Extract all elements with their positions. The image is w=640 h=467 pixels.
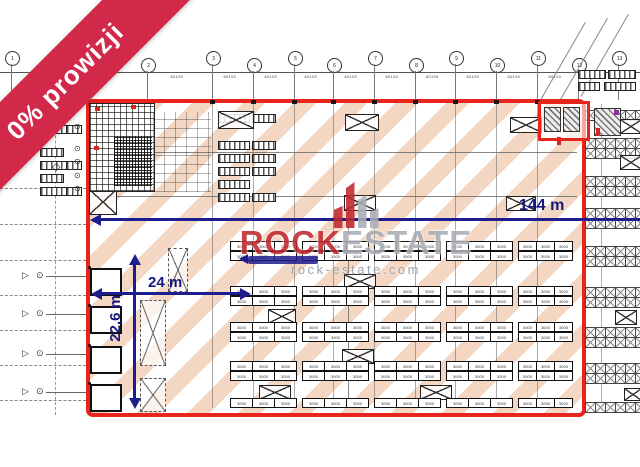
vertical-rack	[140, 300, 166, 366]
rack-band: 300030003000	[374, 296, 440, 306]
dimension-bar	[252, 193, 276, 202]
rack-cell: 3000	[396, 398, 419, 408]
crossed-box	[344, 195, 376, 211]
rack-cell: 3000	[490, 286, 513, 296]
rack-band: 300030003000	[446, 251, 512, 261]
rack-cell: 3000	[518, 241, 537, 251]
rack-cell: 3000	[252, 361, 275, 371]
grid-bubble: 5	[288, 51, 303, 66]
dimension-bar	[252, 141, 276, 150]
rack-cell: 3000	[490, 361, 513, 371]
rack-cell: 3000	[536, 332, 555, 342]
dimension-bar	[252, 167, 276, 176]
column-marker	[494, 100, 499, 104]
dimension-bar	[218, 180, 250, 189]
rack-cell: 3000	[374, 332, 397, 342]
crossed-box	[89, 189, 117, 215]
rack-band: 300030003000	[302, 398, 368, 408]
dimension-label-22-6m: 22,6 m	[107, 295, 124, 342]
grid-bubble: 9	[449, 51, 464, 66]
dock-hinge-icon	[88, 344, 91, 347]
rack-band: 300030003000	[302, 332, 368, 342]
arrowhead-left-icon	[239, 254, 248, 264]
dock-hinge-icon	[88, 382, 91, 385]
rack-cell: 3000	[536, 286, 555, 296]
rack-cell: 3000	[396, 371, 419, 381]
rack-cell: 3000	[536, 398, 555, 408]
rack-band: 300030003000	[374, 332, 440, 342]
crossed-box	[218, 111, 254, 129]
dimension-bar	[252, 154, 276, 163]
rack-cell: 3000	[274, 361, 297, 371]
rack-cell: 3000	[396, 286, 419, 296]
grid-stem	[147, 71, 148, 100]
dock-circle-icon: ⊙	[36, 270, 44, 281]
technical-room-outline	[538, 101, 590, 141]
dimension-bar	[252, 114, 276, 123]
rack-cell: 3000	[324, 371, 347, 381]
bay-dimension-text: 60100	[305, 74, 318, 79]
rack-band: 300030003000	[518, 251, 572, 261]
rack-cell: 3000	[446, 296, 469, 306]
rack-band: 300030003000	[518, 296, 572, 306]
dimension-bar	[578, 70, 606, 79]
dimension-bar	[248, 256, 318, 264]
rack-cell: 3000	[554, 371, 573, 381]
rack-cell: 3000	[518, 361, 537, 371]
dock-leader-line	[46, 314, 86, 315]
rack-band: 300030003000	[302, 241, 368, 251]
rack-band: 300030003000	[374, 241, 440, 251]
rack-band: 300030003000	[302, 371, 368, 381]
rack-cell: 3000	[396, 322, 419, 332]
rack-band: 300030003000	[374, 322, 440, 332]
column-marker	[251, 100, 256, 104]
column-marker	[453, 100, 458, 104]
grid-bubble: 4	[247, 58, 262, 73]
site-gridline	[0, 400, 86, 401]
rack-band: 300030003000	[518, 398, 572, 408]
rack-cell: 3000	[536, 251, 555, 261]
rack-band: 300030003000	[230, 241, 296, 251]
grid-bubble: 11	[531, 51, 546, 66]
dimension-line-144m	[94, 218, 640, 221]
rack-band: 300030003000	[446, 241, 512, 251]
rack-cell: 3000	[346, 332, 369, 342]
rack-band: 300030003000	[446, 296, 512, 306]
rack-band: 300030003000	[302, 361, 368, 371]
rack-band: 300030003000	[302, 296, 368, 306]
rack-band: 300030003000	[518, 322, 572, 332]
column-gridline	[212, 104, 213, 408]
dimension-bar	[218, 141, 250, 150]
rack-cell: 3000	[346, 371, 369, 381]
rack-cell: 3000	[324, 251, 347, 261]
arrowhead-left-icon	[90, 214, 101, 226]
rack-cell: 3000	[446, 398, 469, 408]
rack-cell: 3000	[252, 322, 275, 332]
dimension-bar	[40, 174, 64, 183]
rack-cell: 3000	[518, 322, 537, 332]
rack-cell: 3000	[418, 296, 441, 306]
rack-cell: 3000	[554, 251, 573, 261]
rack-cell: 3000	[418, 322, 441, 332]
rack-band: 300030003000	[446, 371, 512, 381]
bay-dimension-text: 60100	[345, 74, 358, 79]
rack-cell: 3000	[536, 322, 555, 332]
rack-cell: 3000	[518, 398, 537, 408]
column-marker	[331, 100, 336, 104]
dimension-line-22-6m	[133, 262, 136, 402]
rack-cell: 3000	[518, 296, 537, 306]
rack-band: 300030003000	[302, 322, 368, 332]
plan-red-mark	[94, 146, 99, 150]
dock-triangle-icon: ▷	[22, 348, 29, 359]
rack-cell: 3000	[302, 361, 325, 371]
rack-cell: 3000	[490, 241, 513, 251]
axis-circle-icon: ⊙	[74, 122, 81, 131]
rack-cell: 3000	[396, 361, 419, 371]
rack-band: 300030003000	[374, 251, 440, 261]
rack-cell: 3000	[396, 241, 419, 251]
rack-cell: 3000	[396, 332, 419, 342]
crossed-box	[624, 388, 640, 401]
grid-bubble: 13	[612, 51, 627, 66]
rack-cell: 3000	[536, 296, 555, 306]
parking-space	[635, 402, 640, 413]
rack-cell: 3000	[518, 251, 537, 261]
plan-purple-mark	[614, 110, 619, 115]
dock-hinge-icon	[88, 304, 91, 307]
grid-bubble: 2	[141, 58, 156, 73]
rack-cell: 3000	[518, 371, 537, 381]
rack-cell: 3000	[230, 361, 253, 371]
rack-cell: 3000	[554, 286, 573, 296]
dock-leader-line	[46, 276, 86, 277]
rack-cell: 3000	[230, 241, 253, 251]
rack-cell: 3000	[346, 361, 369, 371]
crossed-box	[620, 155, 640, 170]
rack-cell: 3000	[302, 371, 325, 381]
rack-cell: 3000	[324, 398, 347, 408]
rack-cell: 3000	[324, 332, 347, 342]
rack-band: 300030003000	[446, 286, 512, 296]
crossed-box	[345, 114, 379, 131]
rack-cell: 3000	[418, 371, 441, 381]
bay-dimension-text: 60100	[426, 74, 439, 79]
dimension-label-24m: 24 m	[148, 274, 182, 291]
dimension-bar	[218, 167, 250, 176]
dock-door	[90, 384, 122, 412]
office-block-detail	[114, 136, 152, 186]
technical-room-hatch	[544, 107, 561, 132]
rack-cell: 3000	[554, 241, 573, 251]
grid-stem	[415, 71, 416, 100]
rack-band: 300030003000	[230, 322, 296, 332]
rack-band: 300030003000	[374, 286, 440, 296]
bay-dimension-text: 60100	[467, 74, 480, 79]
dimension-bar	[608, 70, 636, 79]
rack-band: 300030003000	[374, 371, 440, 381]
rack-cell: 3000	[446, 371, 469, 381]
rack-cell: 3000	[374, 322, 397, 332]
floorplan-canvas: 1260100360100460100560100660100760100860…	[0, 0, 640, 467]
grid-stem	[333, 71, 334, 100]
rack-cell: 3000	[554, 296, 573, 306]
rack-band: 300030003000	[518, 241, 572, 251]
rack-cell: 3000	[374, 251, 397, 261]
grid-bubble: 6	[327, 58, 342, 73]
rack-cell: 3000	[230, 322, 253, 332]
dimension-bar	[218, 193, 250, 202]
grid-bubble: 1	[5, 51, 20, 66]
rack-band: 300030003000	[518, 361, 572, 371]
site-gridline	[0, 224, 86, 225]
rack-cell: 3000	[490, 322, 513, 332]
rack-cell: 3000	[252, 371, 275, 381]
grid-stem	[374, 64, 375, 100]
dock-door	[90, 346, 122, 374]
axis-circle-icon: ⊙	[74, 171, 81, 180]
rack-cell: 3000	[418, 361, 441, 371]
dimension-bar	[218, 154, 250, 163]
dimension-bar	[40, 148, 64, 157]
rack-cell: 3000	[554, 332, 573, 342]
arrowhead-up-icon	[129, 254, 141, 265]
dimension-label-144m: 144 m	[519, 197, 564, 215]
wall-line	[153, 152, 577, 153]
rack-cell: 3000	[252, 398, 275, 408]
grid-bubble: 8	[409, 58, 424, 73]
rack-band: 300030003000	[374, 361, 440, 371]
rack-cell: 3000	[490, 332, 513, 342]
rack-band: 300030003000	[446, 361, 512, 371]
rack-cell: 3000	[252, 286, 275, 296]
rack-cell: 3000	[446, 241, 469, 251]
rack-cell: 3000	[446, 361, 469, 371]
rack-cell: 3000	[274, 332, 297, 342]
axis-circle-icon: ⊙	[74, 184, 81, 193]
dimension-bar	[40, 187, 68, 196]
rack-cell: 3000	[418, 398, 441, 408]
column-marker	[292, 100, 297, 104]
dock-circle-icon: ⊙	[36, 386, 44, 397]
column-marker	[413, 100, 418, 104]
rack-cell: 3000	[396, 251, 419, 261]
rack-cell: 3000	[374, 296, 397, 306]
rack-cell: 3000	[274, 322, 297, 332]
grid-bubble: 7	[368, 51, 383, 66]
bay-dimension-text: 60100	[508, 74, 521, 79]
rack-cell: 3000	[302, 332, 325, 342]
rack-cell: 3000	[346, 286, 369, 296]
rack-cell: 3000	[554, 398, 573, 408]
grid-bubble: 10	[490, 58, 505, 73]
rack-cell: 3000	[536, 241, 555, 251]
arrowhead-left-icon	[91, 288, 102, 300]
rack-cell: 3000	[490, 398, 513, 408]
rack-cell: 3000	[468, 286, 491, 296]
rack-cell: 3000	[374, 286, 397, 296]
rack-cell: 3000	[346, 241, 369, 251]
parking-space	[635, 256, 640, 267]
rack-cell: 3000	[468, 332, 491, 342]
column-marker	[210, 100, 215, 104]
parking-space	[635, 186, 640, 197]
rack-cell: 3000	[346, 296, 369, 306]
rack-cell: 3000	[252, 332, 275, 342]
dock-hinge-icon	[88, 266, 91, 269]
parking-space	[635, 373, 640, 384]
axis-circle-icon: ⊙	[74, 144, 81, 153]
bay-dimension-text: 60100	[224, 74, 237, 79]
site-gridline	[0, 295, 86, 296]
rack-cell: 3000	[230, 332, 253, 342]
rack-cell: 3000	[324, 286, 347, 296]
rack-band: 300030003000	[446, 332, 512, 342]
rack-cell: 3000	[324, 241, 347, 251]
mezzanine-detail	[153, 112, 211, 192]
dock-circle-icon: ⊙	[36, 348, 44, 359]
bay-dimension-text: 60100	[171, 74, 184, 79]
rack-band: 300030003000	[518, 371, 572, 381]
rack-cell: 3000	[554, 322, 573, 332]
rack-cell: 3000	[418, 332, 441, 342]
axis-circle-icon: ⊙	[74, 157, 81, 166]
rack-cell: 3000	[468, 296, 491, 306]
rack-cell: 3000	[346, 322, 369, 332]
rack-cell: 3000	[518, 286, 537, 296]
rack-cell: 3000	[374, 398, 397, 408]
rack-cell: 3000	[536, 371, 555, 381]
rack-band: 300030003000	[518, 286, 572, 296]
parking-space	[635, 297, 640, 308]
rack-cell: 3000	[252, 241, 275, 251]
dock-leader-line	[46, 354, 86, 355]
rack-cell: 3000	[324, 296, 347, 306]
rack-cell: 3000	[274, 296, 297, 306]
rack-cell: 3000	[446, 251, 469, 261]
diamond-icon: ◇	[52, 160, 60, 173]
rack-cell: 3000	[230, 398, 253, 408]
rack-cell: 3000	[418, 251, 441, 261]
dimension-bar	[604, 82, 636, 91]
rack-band: 300030003000	[446, 322, 512, 332]
grid-stem	[212, 64, 213, 100]
parking-space	[635, 337, 640, 348]
rack-cell: 3000	[302, 286, 325, 296]
rack-cell: 3000	[446, 332, 469, 342]
grid-stem	[294, 64, 295, 100]
rack-cell: 3000	[302, 241, 325, 251]
rack-cell: 3000	[324, 361, 347, 371]
rack-band: 300030003000	[230, 398, 296, 408]
grid-stem	[537, 64, 538, 100]
rack-cell: 3000	[230, 371, 253, 381]
dimension-bar	[578, 82, 600, 91]
rack-cell: 3000	[490, 371, 513, 381]
rack-band: 300030003000	[518, 332, 572, 342]
wall-line	[90, 196, 577, 197]
rack-cell: 3000	[302, 322, 325, 332]
rack-cell: 3000	[346, 251, 369, 261]
rack-cell: 3000	[418, 286, 441, 296]
rack-cell: 3000	[468, 241, 491, 251]
rack-band: 300030003000	[302, 286, 368, 296]
rack-cell: 3000	[274, 398, 297, 408]
rack-cell: 3000	[374, 361, 397, 371]
rack-cell: 3000	[468, 322, 491, 332]
dock-triangle-icon: ▷	[22, 386, 29, 397]
rack-cell: 3000	[302, 398, 325, 408]
rack-cell: 3000	[468, 371, 491, 381]
vertical-rack	[140, 378, 166, 412]
crossed-box	[620, 119, 640, 134]
rack-band: 300030003000	[446, 398, 512, 408]
rack-cell: 3000	[274, 371, 297, 381]
rack-cell: 3000	[554, 361, 573, 371]
rack-band: 300030003000	[230, 371, 296, 381]
dock-leader-line	[46, 392, 86, 393]
site-gridline	[0, 330, 86, 331]
rack-cell: 3000	[274, 241, 297, 251]
rack-cell: 3000	[446, 286, 469, 296]
dock-triangle-icon: ▷	[22, 308, 29, 319]
crossed-box	[615, 310, 637, 325]
rack-band: 300030003000	[230, 332, 296, 342]
rack-cell: 3000	[252, 296, 275, 306]
arrowhead-right-icon	[240, 288, 251, 300]
grid-bubble: 3	[206, 51, 221, 66]
rack-cell: 3000	[274, 286, 297, 296]
arrowhead-down-icon	[129, 398, 141, 409]
rack-band: 300030003000	[230, 361, 296, 371]
site-gridline	[0, 365, 86, 366]
grid-stem	[253, 71, 254, 100]
rack-cell: 3000	[396, 296, 419, 306]
column-marker	[372, 100, 377, 104]
rack-cell: 3000	[468, 251, 491, 261]
rack-cell: 3000	[324, 322, 347, 332]
dock-circle-icon: ⊙	[36, 308, 44, 319]
rack-cell: 3000	[374, 241, 397, 251]
plan-red-mark	[557, 137, 561, 145]
plan-red-mark	[95, 107, 100, 111]
bay-dimension-text: 60100	[265, 74, 278, 79]
rack-cell: 3000	[418, 241, 441, 251]
site-gridline	[0, 260, 86, 261]
rack-cell: 3000	[490, 251, 513, 261]
rack-cell: 3000	[468, 398, 491, 408]
rack-cell: 3000	[490, 296, 513, 306]
rack-cell: 3000	[346, 398, 369, 408]
plan-red-mark	[131, 105, 136, 109]
rack-cell: 3000	[468, 361, 491, 371]
rack-band: 300030003000	[374, 398, 440, 408]
technical-room-hatch	[563, 107, 580, 132]
rack-cell: 3000	[446, 322, 469, 332]
grid-stem	[496, 71, 497, 100]
rack-cell: 3000	[518, 332, 537, 342]
bay-dimension-text: 60100	[386, 74, 399, 79]
rack-cell: 3000	[536, 361, 555, 371]
grid-stem	[455, 64, 456, 100]
dock-triangle-icon: ▷	[22, 270, 29, 281]
rack-cell: 3000	[374, 371, 397, 381]
plan-red-mark	[596, 128, 600, 136]
rack-cell: 3000	[302, 296, 325, 306]
